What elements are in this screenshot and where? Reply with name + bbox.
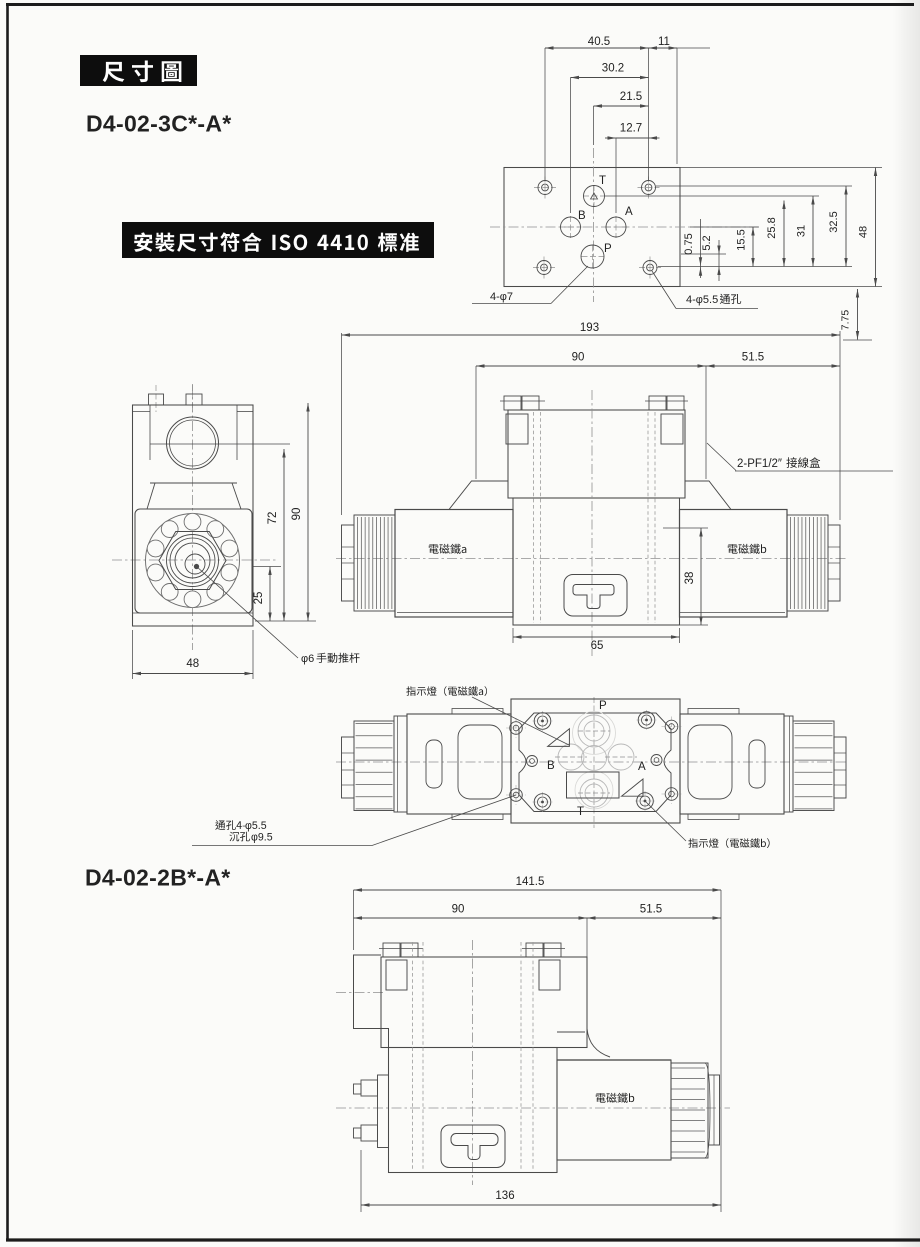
svg-text:B: B [578, 210, 586, 222]
svg-text:90: 90 [452, 904, 465, 916]
svg-text:15.5: 15.5 [736, 229, 748, 250]
svg-text:4-φ5.5: 4-φ5.5 [686, 294, 718, 306]
svg-text:12.7: 12.7 [620, 123, 642, 135]
svg-text:51.5: 51.5 [742, 352, 764, 364]
svg-text:A: A [625, 206, 633, 218]
svg-text:φ5.5: φ5.5 [245, 820, 267, 832]
svg-text:136: 136 [495, 1190, 514, 1202]
svg-text:P: P [599, 700, 607, 712]
svg-text:5.2: 5.2 [701, 235, 713, 250]
svg-text:48: 48 [186, 658, 199, 670]
svg-text:21.5: 21.5 [620, 91, 642, 103]
svg-text:φ6: φ6 [301, 653, 314, 665]
svg-text:90: 90 [291, 508, 303, 521]
svg-text:7.75: 7.75 [840, 310, 852, 331]
svg-text:141.5: 141.5 [516, 876, 545, 888]
svg-text:40.5: 40.5 [588, 36, 610, 48]
svg-text:38: 38 [684, 572, 696, 585]
svg-text:48: 48 [858, 226, 870, 238]
svg-text:25: 25 [253, 592, 265, 605]
svg-text:B: B [547, 760, 555, 772]
svg-text:2-PF1/2″: 2-PF1/2″ [737, 458, 782, 470]
svg-text:193: 193 [580, 322, 599, 334]
svg-text:11: 11 [658, 36, 670, 48]
svg-text:D4-02-2B*-A*: D4-02-2B*-A* [85, 865, 230, 891]
svg-text:0.75: 0.75 [683, 233, 695, 254]
svg-text:D4-02-3C*-A*: D4-02-3C*-A* [86, 111, 231, 137]
svg-text:65: 65 [591, 640, 604, 652]
svg-text:25.8: 25.8 [766, 217, 778, 238]
svg-text:90: 90 [572, 352, 585, 364]
svg-text:T: T [577, 806, 584, 818]
svg-text:31: 31 [796, 225, 808, 237]
svg-text:72: 72 [267, 512, 279, 525]
svg-text:51.5: 51.5 [640, 904, 662, 916]
svg-text:32.5: 32.5 [828, 211, 840, 232]
svg-text:P: P [604, 243, 612, 255]
svg-text:φ9.5: φ9.5 [251, 832, 273, 844]
svg-text:4-φ7: 4-φ7 [490, 291, 513, 303]
svg-text:30.2: 30.2 [602, 63, 624, 75]
svg-text:T: T [599, 175, 606, 187]
svg-text:A: A [638, 761, 646, 773]
